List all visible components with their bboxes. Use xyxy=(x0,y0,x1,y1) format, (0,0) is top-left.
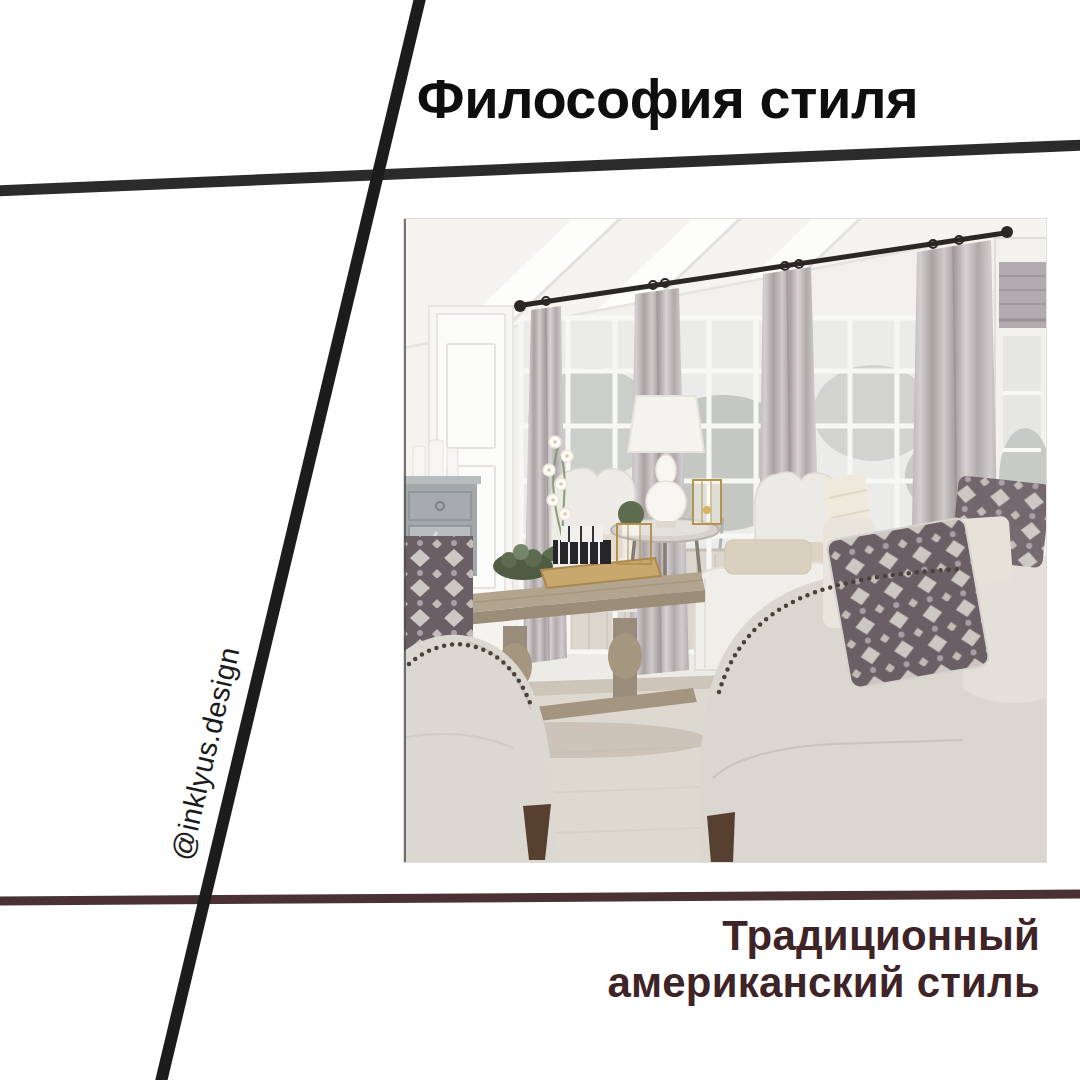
post-canvas: Философия стиля xyxy=(0,0,1080,1080)
top-horizontal-line xyxy=(0,145,1080,191)
steep-diagonal-line xyxy=(160,0,421,1080)
gold-lantern xyxy=(693,480,721,524)
caption-line-1: Традиционный xyxy=(440,912,1040,959)
sofa-leg xyxy=(707,812,735,863)
living-room-photo xyxy=(403,218,1047,863)
caption-line-2: американский стиль xyxy=(440,959,1040,1006)
page-title: Философия стиля xyxy=(400,66,935,131)
caption-block: Традиционный американский стиль xyxy=(440,912,1040,1006)
roman-shade xyxy=(999,262,1047,328)
ikat-pillow-large xyxy=(826,517,990,689)
bottom-brown-line xyxy=(0,894,1080,901)
